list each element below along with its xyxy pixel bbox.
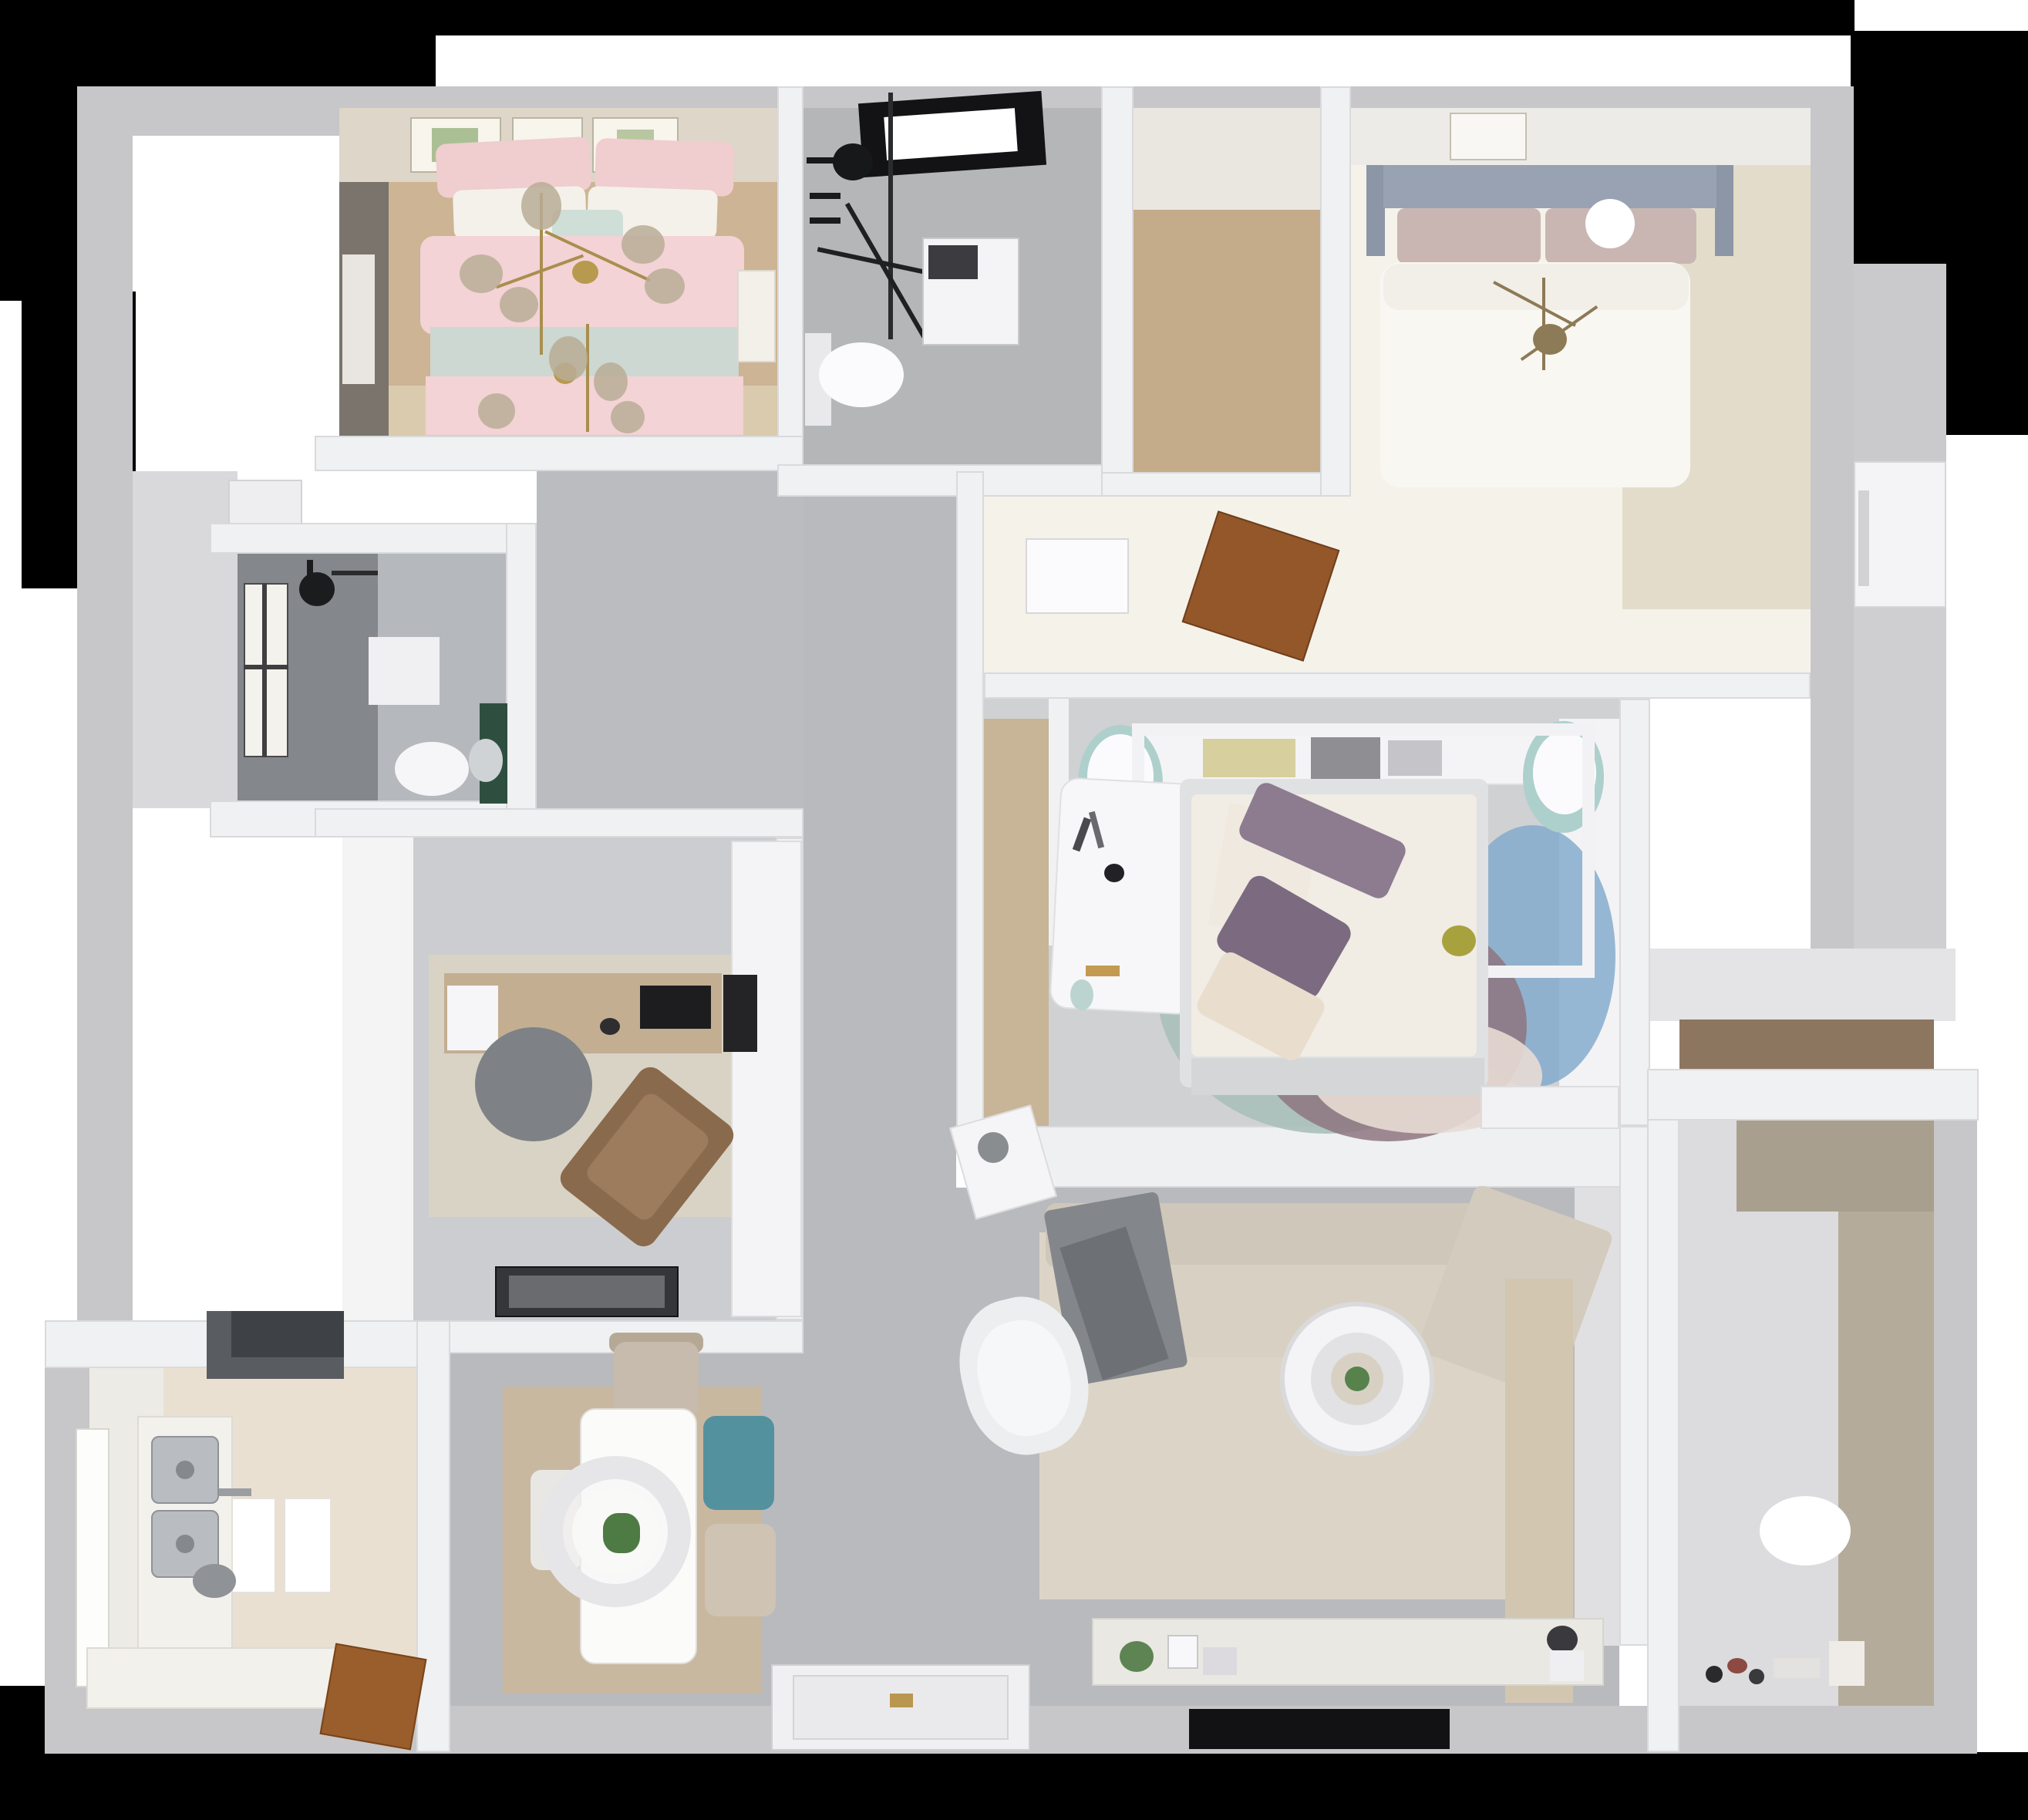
wall-bedroom1-bottom — [315, 436, 803, 471]
kitchen-sink-1-drain — [176, 1461, 194, 1479]
backdrop-black-top-strip — [432, 0, 1855, 35]
hallway-floor-west — [537, 471, 803, 808]
chandelier2-hub — [1533, 324, 1567, 355]
chandelier1-globe-8 — [478, 393, 515, 429]
bathroom1-washer-panel — [928, 245, 978, 279]
bathroom1-toilet-bowl — [819, 342, 904, 407]
wall-bathroom1-bottom — [777, 464, 1104, 497]
wall-balcony-top — [1647, 1069, 1979, 1121]
bed2-ball-lamp — [1585, 199, 1635, 248]
closet-wood-floor — [1134, 210, 1320, 472]
right-niche-door — [1858, 490, 1869, 586]
balcony-ceiling-band — [1647, 949, 1956, 1021]
bedroom3-desk-knob — [1104, 864, 1124, 882]
tv-console-frame — [1167, 1635, 1198, 1669]
chandelier1-stem-lower — [586, 324, 589, 432]
bed3-footboard — [1191, 1058, 1484, 1095]
living-side-table-plant — [978, 1132, 1009, 1163]
bathroom2-shower-head — [299, 572, 335, 606]
bedroom2-ceiling-art — [1450, 113, 1527, 160]
bed2-headboard-post-left — [1366, 165, 1385, 256]
bed3-bench — [1481, 1086, 1619, 1129]
chandelier1-globe-4 — [500, 287, 538, 322]
backdrop-black-left-upper — [0, 69, 86, 301]
chandelier1-globe-5 — [645, 268, 685, 304]
kitchen-light-panel-2 — [284, 1498, 332, 1593]
wall-bedroom3-top — [984, 672, 1811, 699]
left-corridor-niche — [133, 471, 237, 808]
outer-wall-right-upper — [1811, 86, 1854, 958]
bathroom1-glass-vertical — [888, 93, 893, 339]
tv-console-tray — [1203, 1647, 1237, 1675]
wall-living-right — [1619, 1126, 1650, 1646]
balcony-toy-3 — [1749, 1669, 1764, 1684]
chandelier1-globe-1 — [521, 182, 561, 230]
balcony-basket — [1774, 1658, 1820, 1678]
study-doormat-inner — [509, 1276, 665, 1308]
chandelier1-globe-6 — [549, 336, 588, 381]
kitchen-faucet — [219, 1488, 251, 1496]
coffee-table-plant — [1345, 1367, 1369, 1391]
chandelier1-globe-3 — [460, 254, 503, 293]
bed3-floral-accent — [1442, 925, 1476, 956]
bed2-pillow-left — [1397, 208, 1541, 264]
balcony-watering-can — [1829, 1641, 1865, 1686]
bedroom3-closet-wood — [984, 719, 1049, 1126]
wall-bedroom3-right — [1619, 699, 1650, 1126]
bathroom2-window-bar-v — [262, 583, 267, 757]
foyer-vent-louver — [1026, 538, 1129, 614]
bedroom3-desk-bottle — [1070, 979, 1093, 1010]
hallway-floor-main — [803, 471, 956, 1353]
kitchen-hood-dark — [231, 1311, 344, 1357]
wall-bathroom2-right — [506, 523, 537, 838]
wall-closet-bedroom2 — [1320, 86, 1351, 497]
bed1-duvet-pink-bottom — [426, 376, 743, 435]
bathroom1-valve-2 — [810, 217, 841, 224]
bed2-headboard — [1383, 165, 1716, 208]
kitchen-counter-bottom — [86, 1647, 356, 1709]
balcony-wood-shelf — [1679, 1020, 1934, 1069]
kitchen-light-panel-1 — [231, 1498, 276, 1593]
chandelier1-globe-9 — [611, 401, 645, 433]
bedroom1-window — [342, 254, 375, 384]
outer-wall-left — [77, 86, 133, 1353]
tv-console-plant — [1120, 1641, 1154, 1672]
wall-closet-bottom — [1101, 472, 1351, 497]
balcony-light — [1760, 1496, 1851, 1566]
wall-bathroom2-top — [210, 523, 537, 554]
chandelier1-globe-7 — [594, 362, 628, 401]
balcony-toy-2 — [1727, 1658, 1747, 1673]
wall-bedroom1-bathroom1 — [777, 86, 803, 472]
wall-bedroom3-bottom-band — [984, 1126, 1650, 1188]
study-shelf-black — [723, 975, 757, 1052]
backdrop-black-bottom-band — [0, 1752, 2028, 1820]
study-chair — [475, 1027, 592, 1141]
outer-wall-right-lower — [1934, 1069, 1977, 1754]
bathroom2-mat — [369, 637, 440, 705]
bathroom2-window-bar-h — [244, 665, 288, 669]
dining-chair-beige — [705, 1524, 776, 1616]
tv-panel — [1189, 1709, 1450, 1749]
study-curtain — [342, 838, 413, 1320]
study-mouse — [600, 1018, 620, 1035]
outer-wall-right-block-top — [1854, 264, 1946, 461]
bathroom1-skylight-glass — [884, 108, 1017, 160]
closet-ceiling — [1134, 108, 1320, 210]
kitchen-pot — [193, 1564, 236, 1598]
wall-bathroom1-closet — [1101, 86, 1134, 497]
study-monitor — [640, 986, 711, 1029]
dining-centerpiece-plant — [603, 1513, 640, 1553]
wall-study-top — [315, 808, 803, 838]
tv-console-bowl — [1547, 1626, 1578, 1653]
balcony-blind-stack — [1737, 1121, 1934, 1212]
chandelier1-globe-2 — [622, 225, 665, 264]
kitchen-entry-wood-door — [319, 1643, 426, 1750]
bathroom1-shower-arm — [807, 157, 853, 163]
bathroom1-valve-1 — [810, 193, 841, 199]
tv-console-box — [1550, 1650, 1584, 1681]
outer-wall-right-block-bottom — [1854, 608, 1946, 949]
bathroom2-ceiling-rail — [332, 571, 378, 575]
dining-chair-teal — [703, 1416, 774, 1510]
bed2-headboard-post-right — [1715, 165, 1733, 256]
balcony-toy-1 — [1706, 1666, 1723, 1683]
bathroom2-toilet — [395, 742, 469, 796]
kitchen-sink-2-drain — [176, 1535, 194, 1553]
front-door-panel — [793, 1675, 1009, 1740]
floor-plan — [0, 0, 2028, 1820]
bedroom2-ceiling — [1351, 108, 1811, 165]
bedroom3-desk-handle — [1086, 966, 1120, 976]
chandelier1-hub — [572, 261, 598, 284]
bathroom2-basin — [469, 739, 503, 782]
dining-chair-top — [614, 1342, 699, 1419]
hallway-cabinet — [731, 841, 802, 1317]
bed1-nightstand — [737, 270, 776, 362]
backdrop-black-right-strip — [1946, 259, 2028, 435]
wall-balcony-left — [1647, 1069, 1679, 1752]
study-desk-papers — [447, 986, 498, 1050]
wall-hallway-right — [956, 471, 984, 1149]
backdrop-black-top-right — [1851, 31, 2028, 264]
front-door-handle — [890, 1694, 913, 1707]
